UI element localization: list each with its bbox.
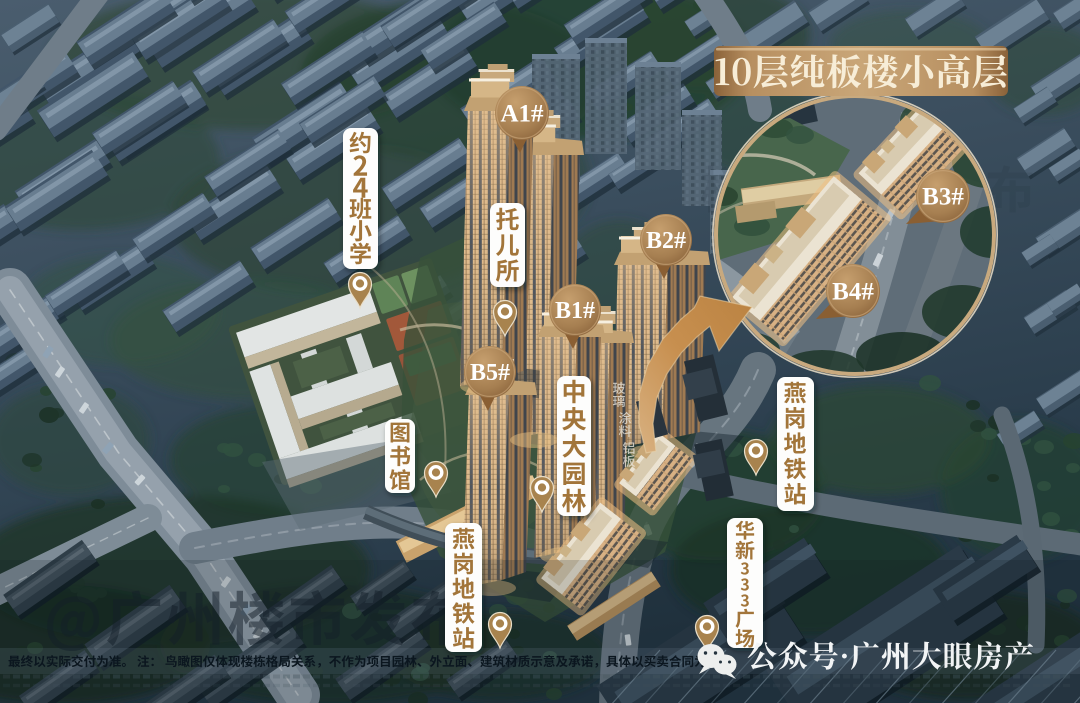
svg-text:B5#: B5# — [470, 360, 510, 386]
svg-text:B3#: B3# — [922, 184, 964, 211]
svg-text:B2#: B2# — [646, 228, 686, 254]
svg-text:B4#: B4# — [832, 279, 874, 306]
svg-text:B1#: B1# — [555, 298, 595, 324]
svg-text:A1#: A1# — [500, 101, 544, 128]
